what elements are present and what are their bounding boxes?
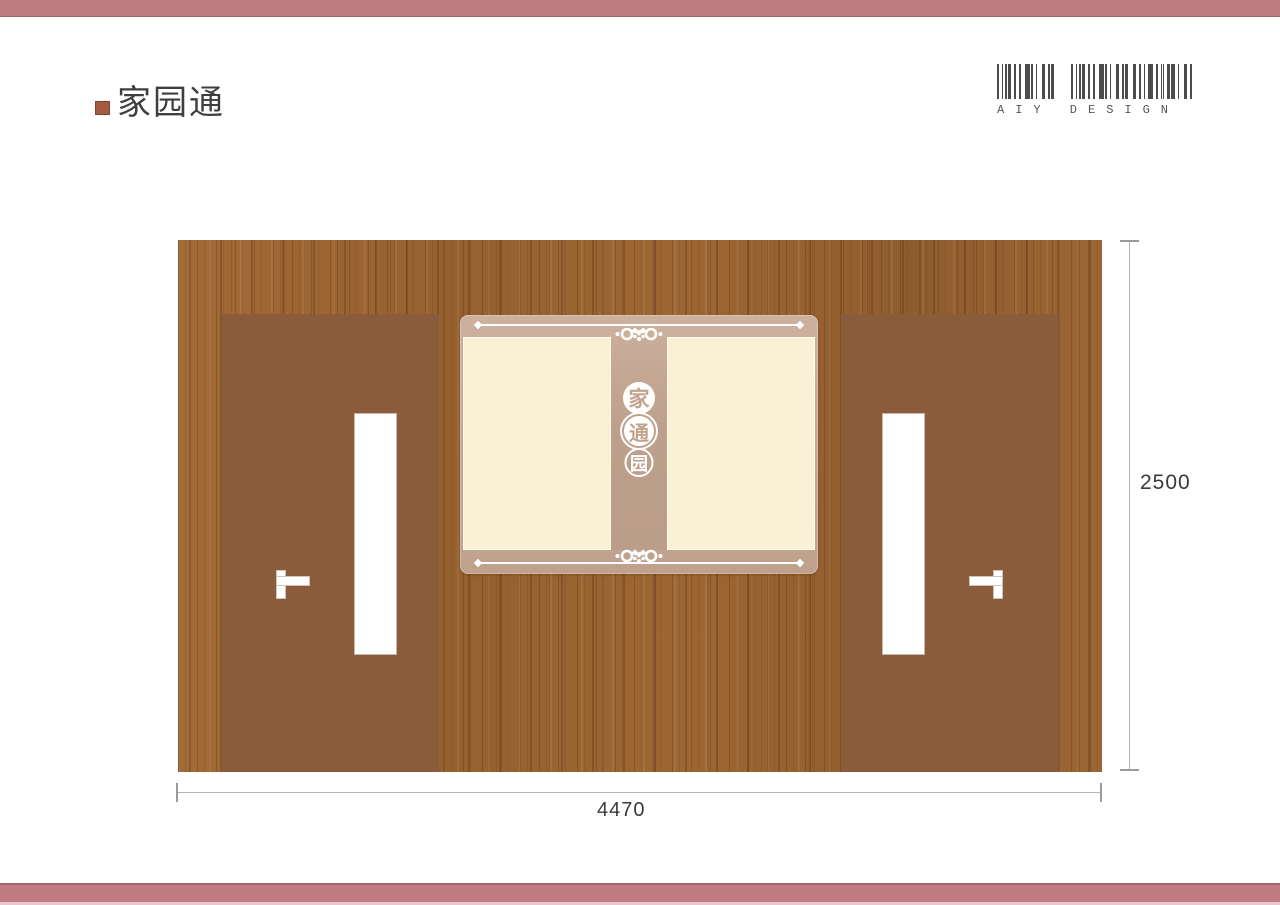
dimension-line-height [1129,241,1130,770]
right-door-handle-bar [969,576,1003,586]
top-accent-bar [0,0,1280,17]
signboard-right-panel [667,337,815,550]
dimension-label-height: 2500 [1140,471,1191,495]
barcode-bars-right [1071,64,1193,99]
dimension-tick-top [1120,240,1139,242]
bottom-accent-bar [0,883,1280,905]
barcode-bars [997,64,1195,99]
dimension-tick-bottom [1120,769,1139,771]
dimension-label-width: 4470 [597,799,646,822]
flourish-ornament-top [615,326,663,342]
signboard-left-panel [463,337,611,550]
barcode: AIY DESIGN [997,64,1195,116]
barcode-bars-left [997,64,1058,99]
wall-rendering: 家 通 园 [178,240,1102,772]
right-door-window [882,413,925,655]
dimension-tick-right [1100,783,1102,802]
signboard-char-middle: 通 [624,416,654,446]
dimension-tick-left [176,783,178,802]
signboard-char-top: 家 [623,382,655,414]
left-door-panel [222,314,439,772]
brand-label: AIY DESIGN [997,103,1195,117]
dimension-line-width [177,792,1101,793]
left-door-handle-bar [276,576,310,586]
section-bullet [95,101,110,115]
flourish-ornament-bottom [615,548,663,564]
right-door-panel [841,314,1058,772]
signboard: 家 通 园 [460,315,818,574]
page-title: 家园通 [117,85,225,122]
signboard-char-bottom: 园 [625,448,654,477]
left-door-window [354,413,397,655]
